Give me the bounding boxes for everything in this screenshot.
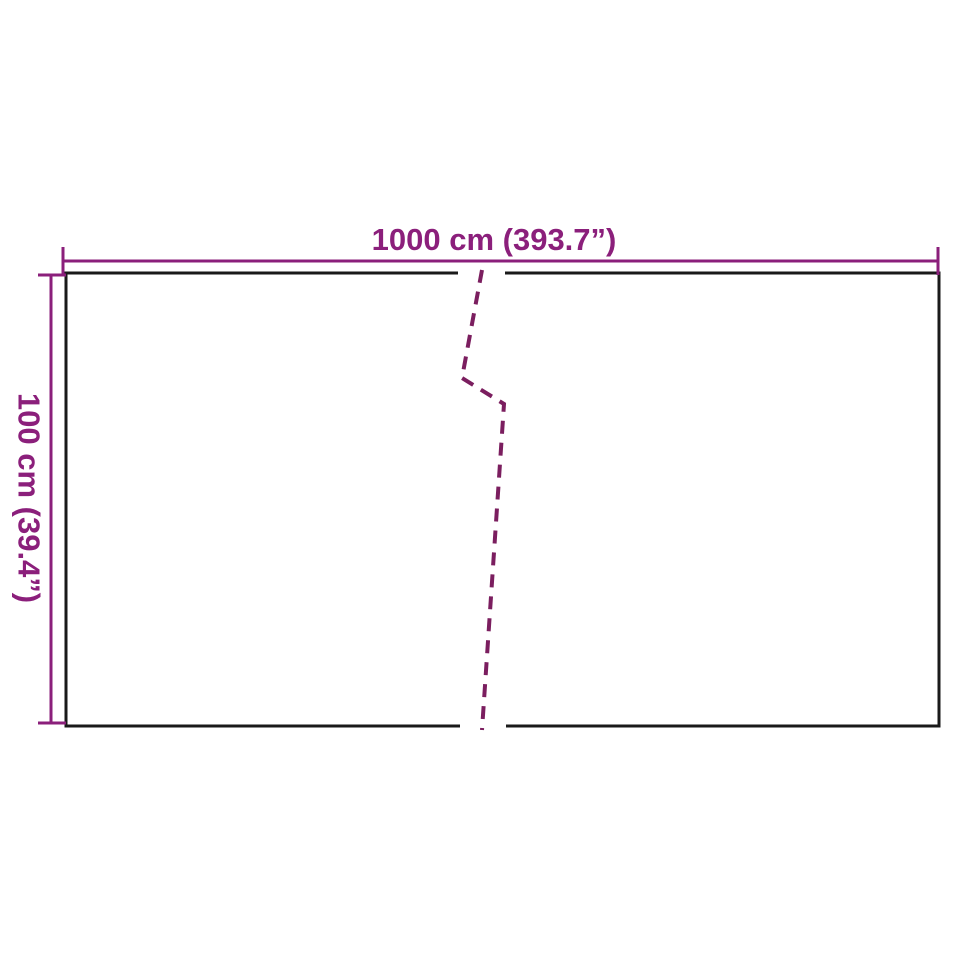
height-dimension-label: 100 cm (39.4”) (14, 393, 45, 603)
length-break-line (462, 270, 504, 730)
product-outline (66, 272, 939, 728)
width-dimension-label: 1000 cm (393.7”) (372, 224, 617, 255)
product-dimension-diagram: 1000 cm (393.7”) 100 cm (39.4”) (0, 0, 955, 955)
diagram-canvas (0, 0, 955, 955)
